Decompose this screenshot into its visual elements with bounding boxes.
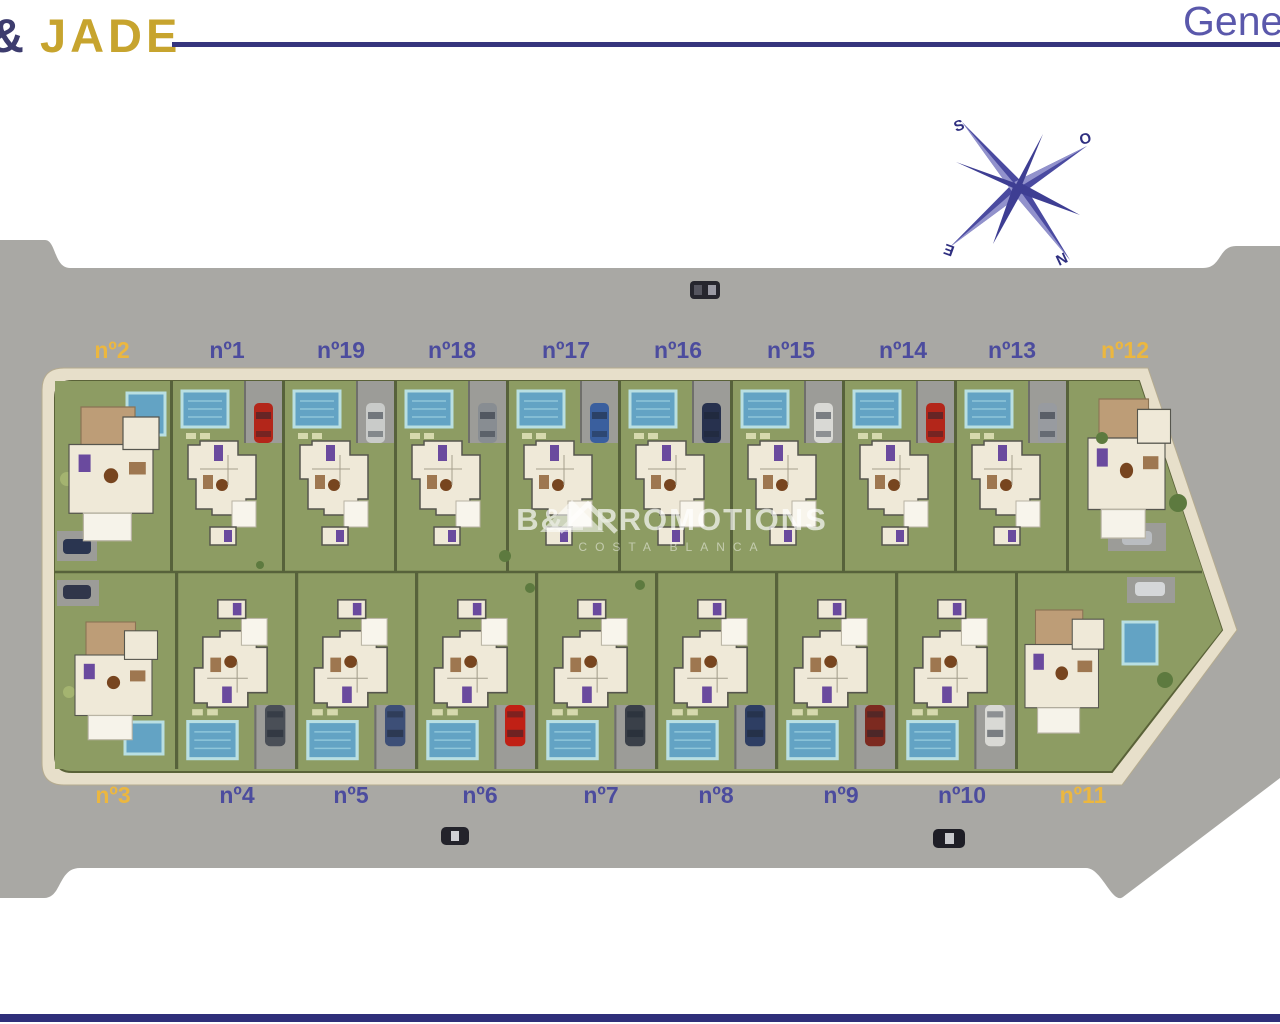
plot-label-n18: nº18 <box>428 337 476 363</box>
plot-label-n6: nº6 <box>462 782 497 808</box>
plot-villa-n2 <box>55 381 170 572</box>
road-car <box>690 281 720 299</box>
site-plan: nº2 nº1 nº19 nº18 nº17 nº16 nº15 nº14 nº… <box>0 0 1280 1024</box>
plot-label-n17: nº17 <box>542 337 590 363</box>
plot-label-n3: nº3 <box>95 782 130 808</box>
plot-label-n8: nº8 <box>698 782 733 808</box>
plot-villa-n4 <box>175 572 295 769</box>
plot-villa-n3 <box>55 572 175 769</box>
page: &JADE Gene <box>0 0 1280 1024</box>
car <box>63 585 91 599</box>
compass-west-label: O <box>1078 129 1094 149</box>
plot-villa-n1 <box>170 381 282 572</box>
plot-label-n15: nº15 <box>767 337 815 363</box>
plot-label-n4: nº4 <box>219 782 254 808</box>
plot-label-n13: nº13 <box>988 337 1036 363</box>
plot-label-n7: nº7 <box>583 782 618 808</box>
bottom-bar <box>0 1014 1280 1022</box>
plot-villa-n19 <box>282 381 394 572</box>
plot-label-n9: nº9 <box>823 782 858 808</box>
plot-villa-n8 <box>655 572 775 769</box>
plot-label-n16: nº16 <box>654 337 702 363</box>
plot-villa-n9 <box>775 572 895 769</box>
road-car <box>933 829 965 848</box>
compass-south-label: S <box>952 116 967 135</box>
plot-label-n12: nº12 <box>1101 337 1149 363</box>
plot-villa-n14 <box>842 381 954 572</box>
plot-label-n2: nº2 <box>94 337 129 363</box>
plot-villa-n13 <box>954 381 1066 572</box>
compass-rose: S O E N <box>942 116 1094 269</box>
road-car <box>441 827 469 845</box>
plot-label-n11: nº11 <box>1060 782 1107 808</box>
plot-label-n10: nº10 <box>938 782 986 808</box>
plot-label-n19: nº19 <box>317 337 365 363</box>
plot-label-n14: nº14 <box>879 337 927 363</box>
compass-north-label: N <box>1054 250 1071 270</box>
plot-villa-n10 <box>895 572 1015 769</box>
plot-villa-n5 <box>295 572 415 769</box>
watermark-subtitle: COSTA BLANCA <box>578 540 765 554</box>
car <box>1135 582 1165 596</box>
plot-villa-n6 <box>415 572 535 769</box>
watermark-brand: B&L PROMOTIONS <box>516 502 828 537</box>
plot-villa-n18 <box>394 381 506 572</box>
plot-label-n5: nº5 <box>333 782 368 808</box>
plot-label-n1: nº1 <box>209 337 244 363</box>
compass-east-label: E <box>942 240 957 259</box>
plot-villa-n7 <box>535 572 655 769</box>
